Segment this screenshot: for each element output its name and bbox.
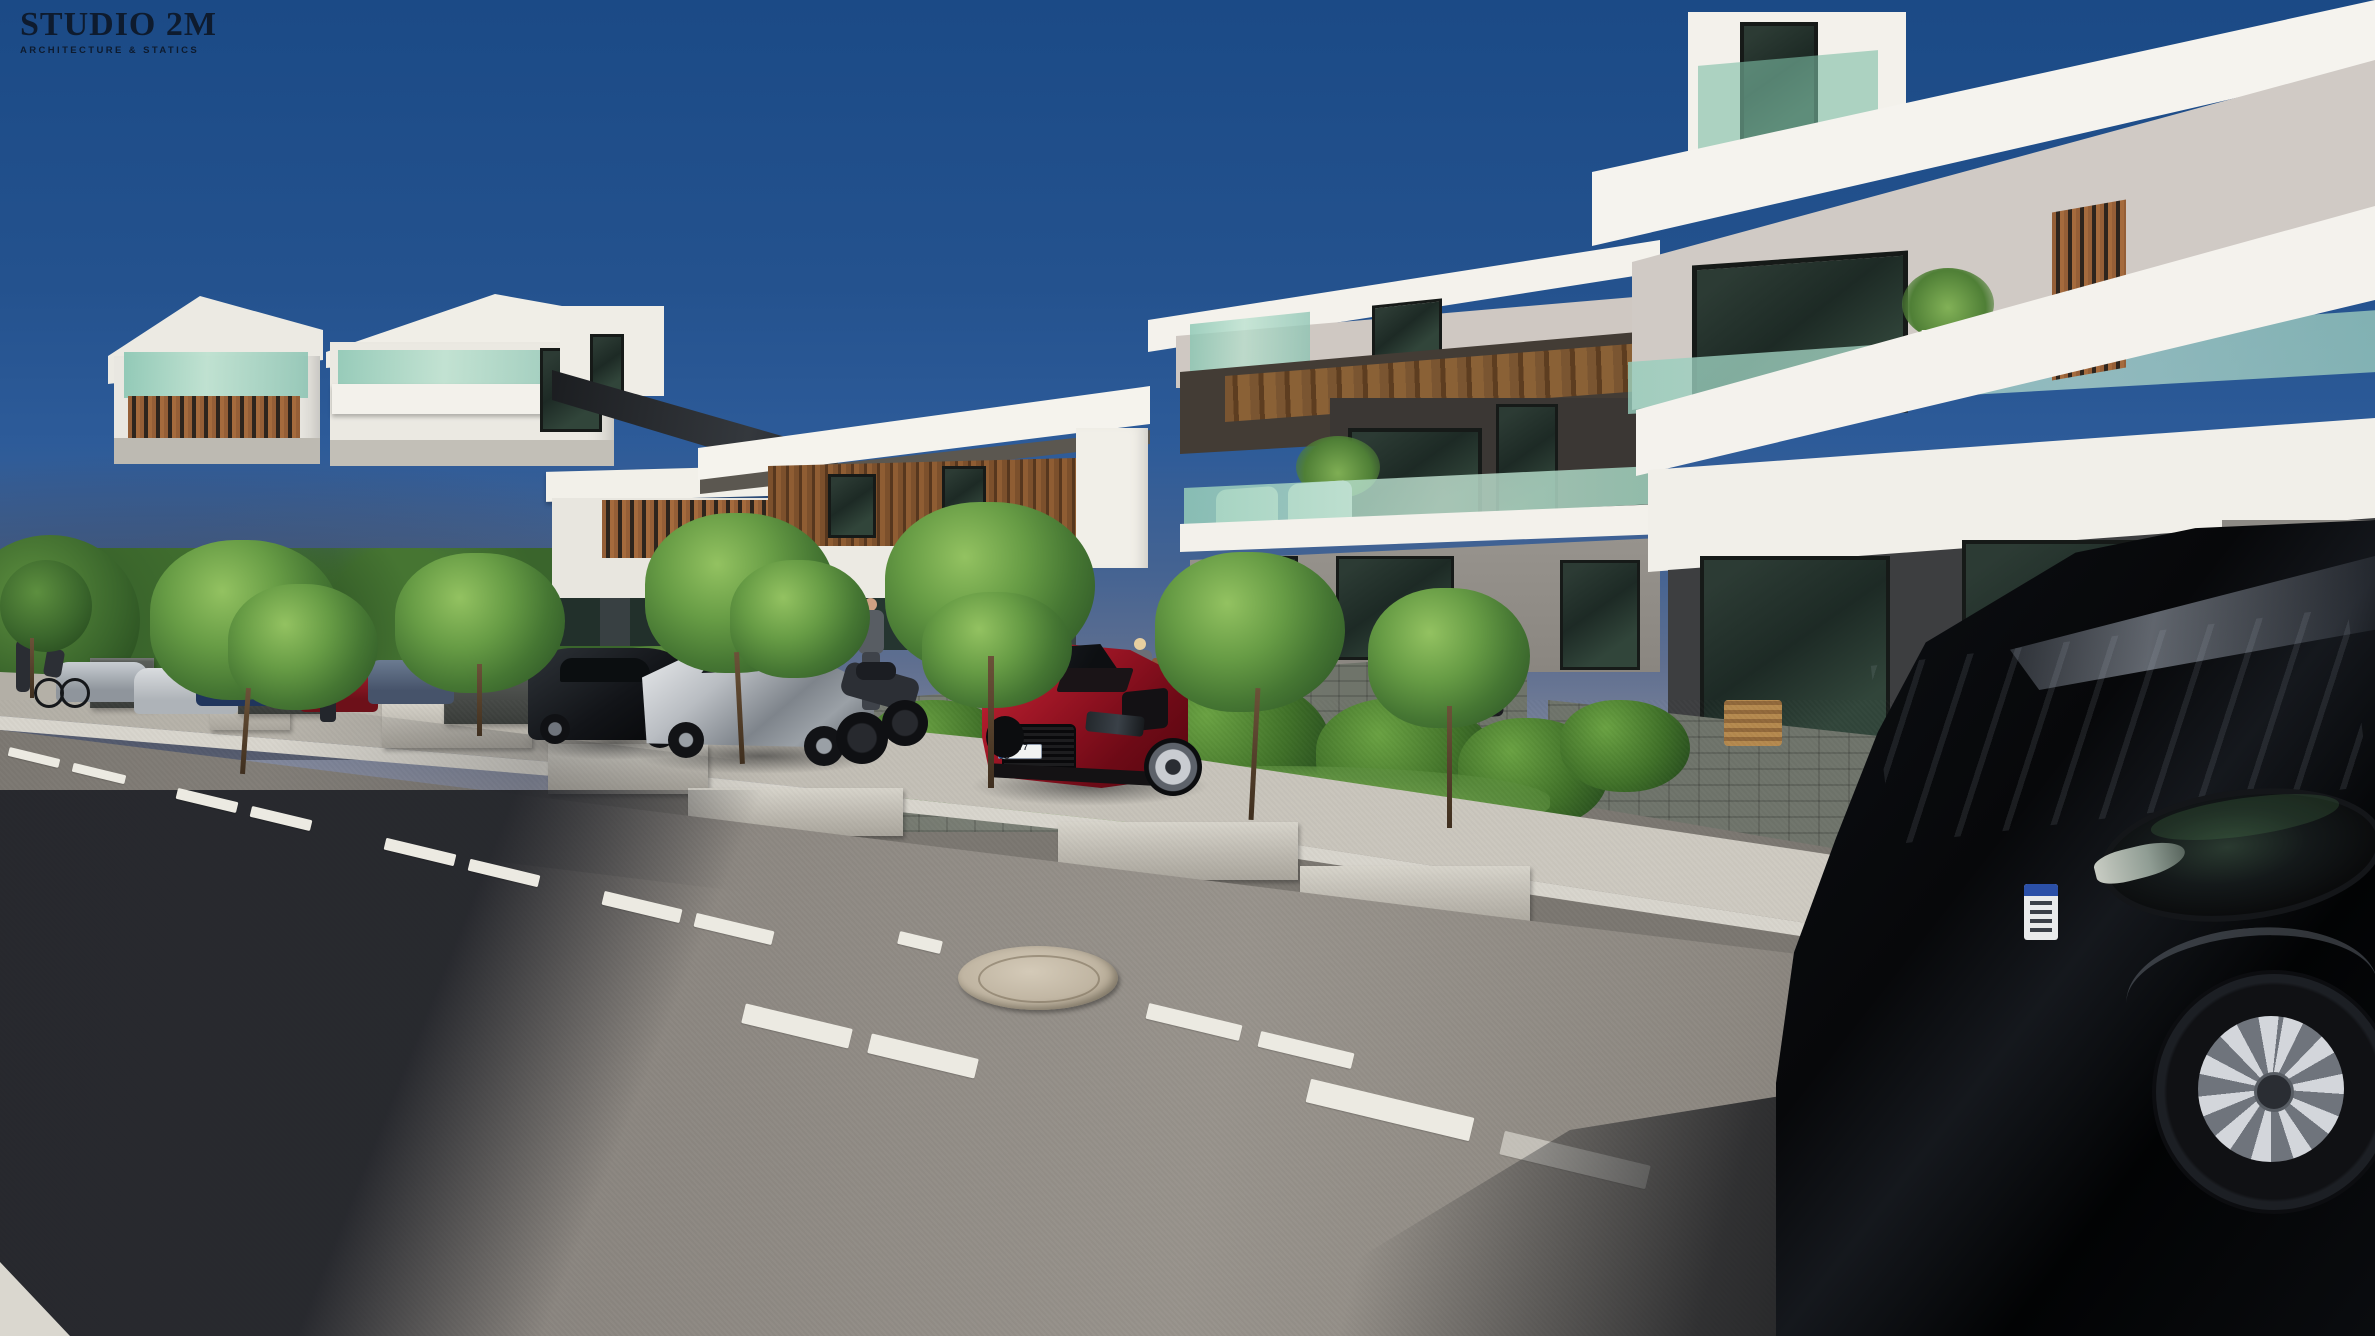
sapling-left-canopy bbox=[0, 560, 92, 652]
villa5-lower-window-3 bbox=[1560, 560, 1640, 670]
black-coupe-window bbox=[560, 658, 650, 682]
villa2-base-shadow bbox=[330, 440, 614, 466]
villa4-corner-pillar bbox=[1076, 428, 1148, 568]
villa1-glass-balcony bbox=[124, 352, 308, 398]
architectural-render-scene: TS 0Y7 5U STUDIO 2M ARCHITECTURE & STATI… bbox=[0, 0, 2375, 1336]
studio-logo: STUDIO 2M ARCHITECTURE & STATICS bbox=[20, 8, 217, 56]
motorcycle-tank bbox=[856, 662, 896, 680]
manhole-ring bbox=[978, 955, 1100, 1003]
black-coupe-wheel-rear bbox=[540, 714, 570, 744]
street-tree-6-trunk bbox=[1447, 706, 1452, 828]
black-sedan-plate-characters bbox=[2030, 900, 2052, 932]
street-tree-4-trunk bbox=[988, 656, 994, 788]
bicycle-wheel-front bbox=[60, 678, 90, 708]
motorcycle-wheel-rear bbox=[836, 712, 888, 764]
red-car-side-window bbox=[1056, 668, 1134, 692]
street-tree-2-trunk bbox=[477, 664, 482, 736]
sapling-left-trunk bbox=[30, 638, 34, 698]
motorcycle-wheel-front bbox=[882, 700, 928, 746]
red-car-wheel-front bbox=[1144, 738, 1202, 796]
blonde-woman-head bbox=[1134, 638, 1146, 650]
logo-subtitle: ARCHITECTURE & STATICS bbox=[20, 45, 217, 56]
villa1-base-shadow bbox=[114, 438, 320, 464]
villa4-window-1 bbox=[828, 474, 876, 538]
black-sedan-wheel-cap bbox=[2254, 1072, 2294, 1112]
villa2-glass-balcony bbox=[338, 350, 574, 388]
silver-car-wheel-rear bbox=[668, 722, 704, 758]
black-sedan-plate-blueband bbox=[2024, 884, 2058, 896]
logo-title: STUDIO 2M bbox=[20, 8, 217, 42]
